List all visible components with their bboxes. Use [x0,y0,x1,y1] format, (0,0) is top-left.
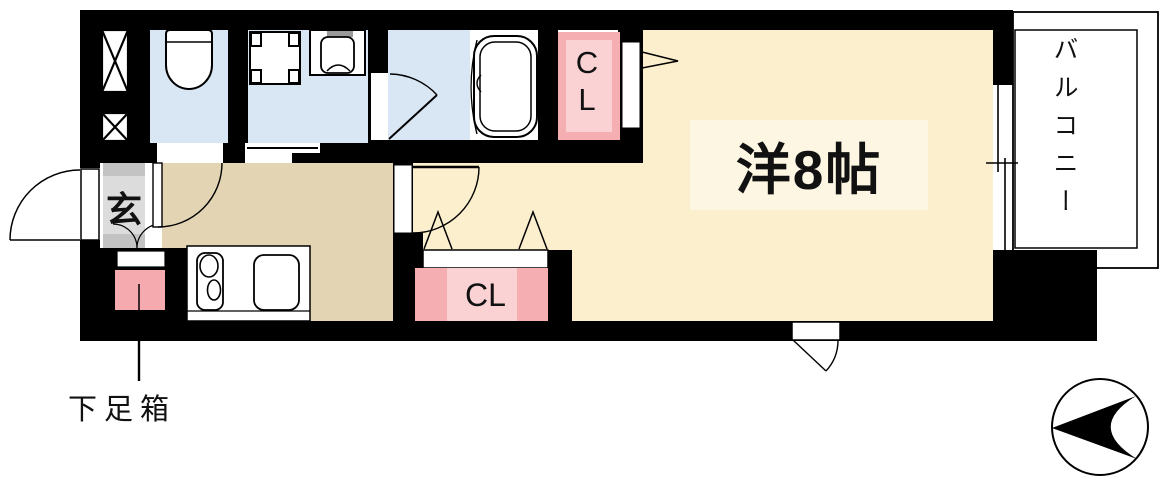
closet-bottom-door [423,250,548,268]
washing-machine-pan-icon [250,32,300,84]
entrance-label: 玄 [103,181,145,233]
shoe-box-label: 下足箱 [68,386,238,428]
entrance-door-leaf [81,169,99,240]
sliding-door-opening [245,153,292,163]
toilet-door-leaf [153,163,162,227]
wall-bath-closet [538,10,558,143]
wall-bottom [80,321,993,341]
closet-bottom-label: CL [423,277,548,314]
entrance-step-bottom [103,234,145,248]
bathtub-icon [471,36,537,137]
main-room-floor [572,250,643,321]
toilet-door-opening [157,143,223,163]
main-room-door-opening [394,165,412,233]
wall-right-block [993,250,1097,341]
floor-plan: 玄 CL CL 洋8帖 バルコニー 下足箱 [0,0,1167,486]
closet-top-door [622,42,640,128]
vanity-sink-icon [310,30,365,75]
main-room-label: 洋8帖 [690,120,928,210]
kitchen-sink-icon [254,255,299,310]
bathroom-floor [388,30,470,140]
wall-closet-bottom [393,233,423,250]
entrance-step-top [103,163,145,176]
service-door-leaf [792,322,840,340]
window-opening [993,85,1013,250]
pipe-shaft-icons [102,30,128,141]
closet-top-label: CL [572,44,602,118]
wall-right-upper [993,10,1013,85]
north-arrow-icon [1052,379,1148,475]
entrance-door-swing [10,169,99,240]
wall-toilet-washroom [228,10,248,163]
shoe-box [115,270,165,310]
shoe-box-counter [117,251,165,267]
toilet-icon [166,30,212,89]
kitchen-counter [187,246,310,321]
service-door-swing [792,322,840,371]
stove-icon [197,253,223,310]
balcony-label: バルコニー [1046,36,1082,250]
bath-door-opening [371,73,388,140]
wall-hall-band [80,143,393,163]
balcony-outline [1013,12,1158,268]
